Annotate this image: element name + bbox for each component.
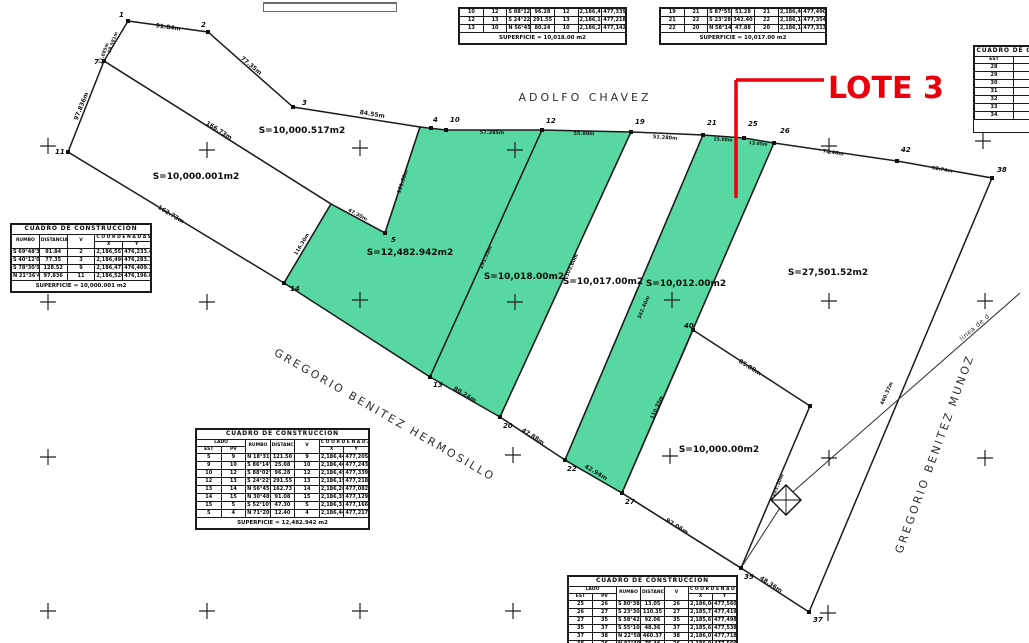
cuadro-construccion-left: CUADRO DE CONSTRUCCIONRUMBODISTANCIAVC O… bbox=[10, 223, 152, 293]
superficie-total: SUPERFICIE = 10,000.001 m2 bbox=[12, 281, 151, 292]
table-row: 29421,5 bbox=[975, 72, 1029, 80]
cuadro-construccion-bottom-table: CUADRO DE CONSTRUCCIONLADORUMBODISTANCIA… bbox=[568, 576, 737, 643]
table-cell: 48.36 bbox=[641, 625, 665, 633]
table-row: 2526S 80°38'20" E13.05262,186,049.60477,… bbox=[569, 601, 737, 609]
grid-cross bbox=[505, 603, 521, 619]
table-cell: N 56°45'10" W bbox=[507, 25, 531, 33]
grid-cross bbox=[352, 603, 368, 619]
table-cell: 13.05 bbox=[641, 601, 665, 609]
table-cell: 2,186,472.84 bbox=[95, 265, 123, 273]
table-cell: S 24°22'46" W bbox=[246, 478, 271, 486]
vertex-dot bbox=[742, 136, 746, 140]
vertex-number-label: 11 bbox=[55, 148, 65, 156]
table-cell: 2,186,557.29 bbox=[95, 249, 123, 257]
table-row: 1012S 88°12'40" E96.28122,186,456.84477,… bbox=[460, 9, 626, 17]
table-row: 3537S 55°10'08" E48.36372,185,650.02477,… bbox=[569, 625, 737, 633]
table-cell: PV bbox=[593, 594, 617, 601]
table-title: CUADRO DE CONSTRUCCION bbox=[569, 577, 737, 587]
survey-plan-canvas: 91.84m77.35m84.55m18.581m11.685m97.836m1… bbox=[0, 0, 1029, 643]
grid-cross bbox=[40, 603, 56, 619]
table-cell: 477,718.55 bbox=[713, 633, 737, 641]
vertex-dot bbox=[383, 231, 387, 235]
table-row: 1012S 88°02'11" E96.28122,186,456.84477,… bbox=[197, 470, 369, 478]
table-row: 30432,1 bbox=[975, 80, 1029, 88]
edge-distance-label: 57.285m bbox=[480, 130, 505, 136]
table-cell: DISTANCIA bbox=[270, 440, 295, 454]
table-cell: 45 bbox=[1014, 96, 1029, 104]
cuadro-construccion-right-partial-table: CUADRO DE CONSTRUCCIONESTPVRUMBO28411,22… bbox=[974, 46, 1029, 132]
table-cell: X bbox=[319, 447, 344, 454]
table-cell: 476,283.37 bbox=[123, 257, 151, 265]
table-cell: 91.84 bbox=[39, 249, 67, 257]
table-cell: 21 bbox=[755, 9, 779, 17]
parcel-10012-00-lote3-area-label: S=10,012.00m2 bbox=[646, 279, 726, 289]
table-row: 2220N 58°14'30" W47.88202,186,163.47477,… bbox=[661, 25, 826, 33]
table-cell: 477,243.02 bbox=[344, 462, 369, 470]
table-cell: 9 bbox=[67, 265, 95, 273]
table-cell: 21 bbox=[661, 17, 685, 25]
table-cell: V bbox=[67, 235, 95, 249]
table-cell: 2,186,163.47 bbox=[778, 25, 802, 33]
table-cell: 44 bbox=[1014, 88, 1029, 96]
table-cell: 12 bbox=[197, 478, 222, 486]
table-cell: 2,185,725.94 bbox=[689, 609, 713, 617]
table-cell: C O O R D E N A D A S bbox=[319, 440, 368, 447]
table-cell: N 21°36'40" W bbox=[12, 273, 40, 281]
table-cell: 21 bbox=[684, 9, 708, 17]
table-row: 910S 86°14'32" E25.08102,186,460.17477,2… bbox=[197, 462, 369, 470]
table-cell: 2,186,230.48 bbox=[578, 25, 602, 33]
table-cell: 291.55 bbox=[531, 17, 555, 25]
table-cell: 15 bbox=[295, 494, 320, 502]
table-cell: 2,186,456.84 bbox=[319, 470, 344, 478]
grid-cross bbox=[505, 447, 521, 463]
vertex-dot bbox=[807, 610, 811, 614]
table-cell: EST bbox=[569, 594, 593, 601]
vertex-number-label: 13 bbox=[433, 381, 443, 389]
vertex-number-label: 1 bbox=[119, 11, 124, 19]
table-cell: Y bbox=[344, 447, 369, 454]
table-cell: 2 bbox=[67, 249, 95, 257]
table-cell: 5 bbox=[295, 502, 320, 510]
table-cell: 12.40 bbox=[270, 510, 295, 518]
table-cell: LADO bbox=[197, 440, 246, 447]
table-cell: 477,205.37 bbox=[344, 454, 369, 462]
table-cell: 10 bbox=[483, 25, 507, 33]
table-header-row: ESTPVRUMBO bbox=[975, 57, 1029, 64]
table-cell: 12 bbox=[554, 9, 578, 17]
table-cell: C O O R D E N A D A S bbox=[95, 235, 151, 242]
superficie-total: SUPERFICIE = 12,482.942 m2 bbox=[197, 518, 369, 529]
table-cell: 10 bbox=[554, 25, 578, 33]
table-cell: N 30°48'22" E bbox=[246, 494, 271, 502]
table-cell: 2,185,650.02 bbox=[689, 625, 713, 633]
table-cell: 10 bbox=[295, 462, 320, 470]
table-cell: 9 bbox=[295, 454, 320, 462]
table-cell: 4 bbox=[221, 510, 246, 518]
table-cell: 38 bbox=[665, 633, 689, 641]
table-cell: 2,186,049.60 bbox=[689, 601, 713, 609]
cuadro-construccion-center: CUADRO DE CONSTRUCCIONLADORUMBODISTANCIA… bbox=[195, 428, 370, 530]
vertex-number-label: 27 bbox=[625, 498, 635, 506]
table-cell: RUMBO bbox=[617, 587, 641, 601]
table-header-row: LADORUMBODISTANCIAVC O O R D E N A D A S bbox=[569, 587, 737, 594]
table-cell: 13 bbox=[554, 17, 578, 25]
table-cell: 2,186,444.92 bbox=[319, 454, 344, 462]
table-cell: 9 bbox=[221, 454, 246, 462]
table-title-row: CUADRO DE CONSTRUCCION bbox=[975, 47, 1029, 57]
vertex-number-label: 26 bbox=[780, 127, 790, 135]
table-cell: 476,409.29 bbox=[123, 265, 151, 273]
table-cell: 14 bbox=[221, 486, 246, 494]
table-cell: 477,313.88 bbox=[802, 25, 826, 33]
table-cell: DISTANCIA bbox=[641, 587, 665, 601]
table-cell: S 58°42'50" E bbox=[617, 617, 641, 625]
table-cell: RUMBO bbox=[246, 440, 271, 454]
table-cell: 29 bbox=[975, 72, 1014, 80]
table-cell: S 88°12'40" E bbox=[507, 9, 531, 17]
superficie-total: SUPERFICIE = 10,017.00 m2 bbox=[661, 33, 826, 44]
cuadro-construccion-top_a: 1012S 88°12'40" E96.28122,186,456.84477,… bbox=[458, 7, 627, 45]
table-cell: 15 bbox=[197, 502, 222, 510]
table-cell: 91.08 bbox=[270, 494, 295, 502]
table-cell: 9 bbox=[197, 462, 222, 470]
table-cell: 47.30 bbox=[270, 502, 295, 510]
vertex-dot bbox=[563, 458, 567, 462]
parcel-27501-52-area-label: S=27,501.52m2 bbox=[788, 268, 868, 278]
table-cell: 25 bbox=[569, 601, 593, 609]
table-header-row: RUMBODISTANCIAVC O O R D E N A D A S bbox=[12, 235, 151, 242]
table-cell: S 86°14'32" E bbox=[246, 462, 271, 470]
table-cell: 477,129.44 bbox=[344, 494, 369, 502]
vertex-number-label: 22 bbox=[567, 465, 577, 473]
table-row: 59N 18°31'47" E121.5092,186,444.92477,20… bbox=[197, 454, 369, 462]
table-cell: 92.06 bbox=[641, 617, 665, 625]
table-cell: EST bbox=[975, 57, 1014, 64]
table-cell: S 24°22'46" W bbox=[507, 17, 531, 25]
vertex-dot bbox=[102, 59, 106, 63]
table-row: 34472,2 bbox=[975, 112, 1029, 120]
table-row: 54N 71°20'15" E12.4042,186,448.90477,217… bbox=[197, 510, 369, 518]
parcel-10000-517-area-label: S=10,000.517m2 bbox=[259, 126, 346, 136]
table-footer-row: SUPERFICIE = 10,000.001 m2 bbox=[12, 281, 151, 292]
table-row: 155S 52°10'05" E47.3052,186,329.69477,16… bbox=[197, 502, 369, 510]
vertex-dot bbox=[629, 130, 633, 134]
cuadro-construccion-top_b-table: 1921S 87°55'08" E51.28212,186,452.10477,… bbox=[660, 8, 826, 44]
table-cell: 477,142.79 bbox=[602, 25, 626, 33]
table-cell: 42 bbox=[1014, 72, 1029, 80]
table-cell: 13 bbox=[197, 486, 222, 494]
table-row: S 69°48'31" E91.8422,186,557.29476,233.4… bbox=[12, 249, 151, 257]
vertex-number-label: 40 bbox=[684, 322, 694, 330]
vertex-number-label: 38 bbox=[997, 166, 1007, 174]
grid-cross bbox=[977, 450, 993, 466]
table-cell: 47 bbox=[1014, 112, 1029, 120]
table-cell: 41 bbox=[1014, 64, 1029, 72]
table-cell: 3 bbox=[67, 257, 95, 265]
table-title: CUADRO DE CONSTRUCCION bbox=[197, 430, 369, 440]
vertex-number-label: 4 bbox=[433, 116, 438, 124]
table-row: 2627S 23°30'12" W110.35272,185,725.94477… bbox=[569, 609, 737, 617]
table-cell: 12 bbox=[460, 17, 484, 25]
table-cell: 10 bbox=[197, 470, 222, 478]
grid-cross bbox=[40, 138, 56, 154]
table-cell: 33 bbox=[975, 104, 1014, 112]
table-cell: S 55°10'08" E bbox=[617, 625, 641, 633]
table-cell: 22 bbox=[661, 25, 685, 33]
table-cell: 5 bbox=[221, 502, 246, 510]
table-cell: 22 bbox=[755, 17, 779, 25]
vertex-dot bbox=[701, 133, 705, 137]
edge-distance-label: 25.08m bbox=[713, 137, 733, 144]
table-cell: 12 bbox=[483, 9, 507, 17]
table-cell: 35 bbox=[593, 617, 617, 625]
table-cell: 477,166.80 bbox=[344, 502, 369, 510]
table-cell: S 78°30'54" E bbox=[12, 265, 40, 273]
table-cell: 13 bbox=[295, 478, 320, 486]
cuadro-construccion-right-partial: CUADRO DE CONSTRUCCIONESTPVRUMBO28411,22… bbox=[973, 45, 1029, 133]
table-cell: S 87°55'08" E bbox=[708, 9, 732, 17]
table-cell: 477,419.86 bbox=[713, 609, 737, 617]
table-cell: 80.24 bbox=[531, 25, 555, 33]
street-name-label: ADOLFO CHAVEZ bbox=[518, 91, 651, 104]
table-blank-row bbox=[975, 120, 1029, 133]
table-cell: 15 bbox=[221, 494, 246, 502]
table-cell: 2,186,498.22 bbox=[95, 257, 123, 265]
table-cell: 477,082.79 bbox=[344, 486, 369, 494]
table-cell: 2,186,074.15 bbox=[689, 633, 713, 641]
vertex-number-label: 21 bbox=[707, 119, 717, 127]
table-row: 32452,4 bbox=[975, 96, 1029, 104]
table-cell: 37 bbox=[593, 625, 617, 633]
table-cell: S 88°02'11" E bbox=[246, 470, 271, 478]
table-cell: 2,186,456.84 bbox=[578, 9, 602, 17]
table-cell: 35 bbox=[569, 625, 593, 633]
table-row: 33461,9 bbox=[975, 104, 1029, 112]
vertex-dot bbox=[739, 566, 743, 570]
table-row: 3738N 22°58'44" E460.37382,186,074.15477… bbox=[569, 633, 737, 641]
table-cell: C O O R D E N A D A S bbox=[689, 587, 737, 594]
table-cell: S 23°28'40" W bbox=[708, 17, 732, 25]
table-cell: 37 bbox=[665, 625, 689, 633]
table-cell: 46 bbox=[1014, 104, 1029, 112]
table-cell: 110.35 bbox=[641, 609, 665, 617]
table-cell: 13 bbox=[221, 478, 246, 486]
table-cell: 10 bbox=[221, 462, 246, 470]
table-cell: 30 bbox=[975, 80, 1014, 88]
table-title-row: CUADRO DE CONSTRUCCION bbox=[197, 430, 369, 440]
vertex-dot bbox=[444, 128, 448, 132]
vertex-dot bbox=[126, 19, 130, 23]
vertex-dot bbox=[895, 159, 899, 163]
table-cell: 2,186,460.17 bbox=[319, 462, 344, 470]
vertex-number-label: 7 bbox=[94, 58, 99, 66]
table-cell: 20 bbox=[755, 25, 779, 33]
table-cell: 2,186,448.90 bbox=[319, 510, 344, 518]
table-cell: S 40°12'08" E bbox=[12, 257, 40, 265]
table-cell: 51.28 bbox=[731, 9, 755, 17]
table-cell: V bbox=[665, 587, 689, 601]
table-cell: 2,186,520.11 bbox=[95, 273, 123, 281]
table-cell: 2,186,191.30 bbox=[578, 17, 602, 25]
vertex-dot bbox=[206, 30, 210, 34]
table-row: 1314N 56°45'10" W162.73142,186,280.48477… bbox=[197, 486, 369, 494]
vertex-dot bbox=[66, 150, 70, 154]
cuadro-construccion-center-table: CUADRO DE CONSTRUCCIONLADORUMBODISTANCIA… bbox=[196, 429, 369, 529]
grid-cross bbox=[975, 133, 991, 149]
table-cell: 476,196.05 bbox=[123, 273, 151, 281]
vertex-number-label: 12 bbox=[546, 117, 556, 125]
table-cell: 37 bbox=[569, 633, 593, 641]
parcel-10017-00-area-label: S=10,017.00m2 bbox=[563, 277, 643, 287]
table-cell: N 22°58'44" E bbox=[617, 633, 641, 641]
table-cell: 26 bbox=[593, 601, 617, 609]
edge-distance-label: 55.00m bbox=[573, 131, 594, 137]
grid-cross bbox=[199, 294, 215, 310]
parcel-12482-942-area-label: S=12,482.942m2 bbox=[367, 248, 454, 258]
table-row: 1310N 56°45'10" W80.24102,186,230.48477,… bbox=[460, 25, 626, 33]
table-cell: N 18°31'47" E bbox=[246, 454, 271, 462]
vertex-number-label: 35 bbox=[744, 573, 754, 581]
table-cell: 11 bbox=[67, 273, 95, 281]
table-cell: 47.88 bbox=[731, 25, 755, 33]
table-row: 28411,2 bbox=[975, 64, 1029, 72]
parcel-10000-00-area-label: S=10,000.00m2 bbox=[679, 445, 759, 455]
table-cell: 121.50 bbox=[270, 454, 295, 462]
table-cell: N 58°14'30" W bbox=[708, 25, 732, 33]
table-cell: 96.28 bbox=[270, 470, 295, 478]
vertex-dot bbox=[990, 176, 994, 180]
table-cell: 35 bbox=[665, 617, 689, 625]
vertex-dot bbox=[772, 141, 776, 145]
table-cell: 14 bbox=[295, 486, 320, 494]
table-cell: 2,186,329.69 bbox=[319, 502, 344, 510]
table-cell: 477,218.92 bbox=[602, 17, 626, 25]
table-cell: 477,339.24 bbox=[602, 9, 626, 17]
vertex-dot bbox=[540, 128, 544, 132]
table-cell: 34 bbox=[975, 112, 1014, 120]
table-cell: 13 bbox=[483, 17, 507, 25]
table-cell: 460.37 bbox=[641, 633, 665, 641]
table-row: 31441,8 bbox=[975, 88, 1029, 96]
table-cell: 27 bbox=[665, 609, 689, 617]
table-cell: S 80°38'20" E bbox=[617, 601, 641, 609]
table-cell: 13 bbox=[460, 25, 484, 33]
vertex-number-label: 2 bbox=[201, 21, 206, 29]
table-cell: 31 bbox=[975, 88, 1014, 96]
table-cell: 342.40 bbox=[731, 17, 755, 25]
table-cell: X bbox=[95, 242, 123, 249]
vertex-number-label: 20 bbox=[503, 422, 513, 430]
titleblock-edge-bar bbox=[263, 2, 397, 12]
table-cell: 2,186,191.30 bbox=[319, 478, 344, 486]
table-cell: 476,233.41 bbox=[123, 249, 151, 257]
vertex-number-label: 3 bbox=[302, 99, 307, 107]
vertex-dot bbox=[498, 415, 502, 419]
lote3-annotation-label: LOTE 3 bbox=[828, 71, 944, 106]
table-cell: 96.28 bbox=[531, 9, 555, 17]
grid-cross bbox=[40, 294, 56, 310]
vertex-dot bbox=[282, 281, 286, 285]
table-cell: 25.08 bbox=[270, 462, 295, 470]
table-cell: RUMBO bbox=[12, 235, 40, 249]
vertex-number-label: 25 bbox=[748, 120, 758, 128]
table-footer-row: SUPERFICIE = 10,017.00 m2 bbox=[661, 33, 826, 44]
table-title-row: CUADRO DE CONSTRUCCION bbox=[12, 225, 151, 235]
vertex-number-label: 42 bbox=[901, 146, 911, 154]
grid-cross bbox=[199, 603, 215, 619]
table-title: CUADRO DE CONSTRUCCION bbox=[975, 47, 1029, 57]
table-row: 2735S 58°42'50" E92.06352,185,677.70477,… bbox=[569, 617, 737, 625]
table-footer-row: SUPERFICIE = 12,482.942 m2 bbox=[197, 518, 369, 529]
survey-map-svg: 91.84m77.35m84.55m18.581m11.685m97.836m1… bbox=[0, 0, 1029, 643]
table-row: 2122S 23°28'40" W342.40222,186,138.25477… bbox=[661, 17, 826, 25]
table-cell: 2,186,280.48 bbox=[319, 486, 344, 494]
cuadro-construccion-top_b: 1921S 87°55'08" E51.28212,186,452.10477,… bbox=[659, 7, 827, 45]
table-cell: 14 bbox=[197, 494, 222, 502]
table-row: S 78°30'54" E128.5292,186,472.84476,409.… bbox=[12, 265, 151, 273]
superficie-total: SUPERFICIE = 10,018.00 m2 bbox=[460, 33, 626, 44]
table-cell: 32 bbox=[975, 96, 1014, 104]
table-cell: 5 bbox=[197, 510, 222, 518]
vertex-number-label: 37 bbox=[813, 616, 823, 624]
table-cell: 128.52 bbox=[39, 265, 67, 273]
table-cell: 477,560.04 bbox=[713, 601, 737, 609]
table-cell: 291.55 bbox=[270, 478, 295, 486]
table-cell: S 69°48'31" E bbox=[12, 249, 40, 257]
table-cell: Y bbox=[713, 594, 737, 601]
table-cell: X bbox=[689, 594, 713, 601]
parcel-10018-00-area-label: S=10,018.00m2 bbox=[484, 272, 564, 282]
table-cell: EST bbox=[197, 447, 222, 454]
vertex-dot bbox=[620, 491, 624, 495]
table-cell: 97.836 bbox=[39, 273, 67, 281]
table-cell: 2,185,677.70 bbox=[689, 617, 713, 625]
grid-cross bbox=[40, 449, 56, 465]
table-row: 1213S 24°22'46" W291.55132,186,191.30477… bbox=[460, 17, 626, 25]
parcel-10000-001-area-label: S=10,000.001m2 bbox=[153, 172, 240, 182]
table-cell: 162.73 bbox=[270, 486, 295, 494]
table-cell: Y bbox=[123, 242, 151, 249]
table-cell: PV bbox=[1014, 57, 1029, 64]
table-cell: 27 bbox=[593, 609, 617, 617]
vertex-number-label: 5 bbox=[391, 236, 396, 244]
vertex-number-label: 10 bbox=[450, 116, 460, 124]
table-cell: LADO bbox=[569, 587, 617, 594]
vertex-number-label: 19 bbox=[635, 118, 645, 126]
table-footer-row: SUPERFICIE = 10,018.00 m2 bbox=[460, 33, 626, 44]
table-cell: 26 bbox=[569, 609, 593, 617]
table-cell: PV bbox=[221, 447, 246, 454]
cuadro-construccion-top_a-table: 1012S 88°12'40" E96.28122,186,456.84477,… bbox=[459, 8, 626, 44]
table-cell: 19 bbox=[661, 9, 685, 17]
table-title-row: CUADRO DE CONSTRUCCION bbox=[569, 577, 737, 587]
table-cell: 2,186,452.10 bbox=[778, 9, 802, 17]
table-cell: 20 bbox=[684, 25, 708, 33]
table-row: 1415N 30°48'22" E91.08152,186,358.71477,… bbox=[197, 494, 369, 502]
table-row: N 21°36'40" W97.836112,186,520.11476,196… bbox=[12, 273, 151, 281]
table-cell: 477,354.06 bbox=[802, 17, 826, 25]
table-row: S 40°12'08" E77.3532,186,498.22476,283.3… bbox=[12, 257, 151, 265]
table-cell: 12 bbox=[295, 470, 320, 478]
table-cell: 477,498.32 bbox=[713, 617, 737, 625]
table-cell: 27 bbox=[569, 617, 593, 625]
vertex-dot bbox=[429, 126, 433, 130]
vertex-dot bbox=[808, 404, 812, 408]
cuadro-construccion-left-table: CUADRO DE CONSTRUCCIONRUMBODISTANCIAVC O… bbox=[11, 224, 151, 292]
vertex-number-label: 14 bbox=[290, 285, 300, 293]
table-cell: 22 bbox=[684, 17, 708, 25]
